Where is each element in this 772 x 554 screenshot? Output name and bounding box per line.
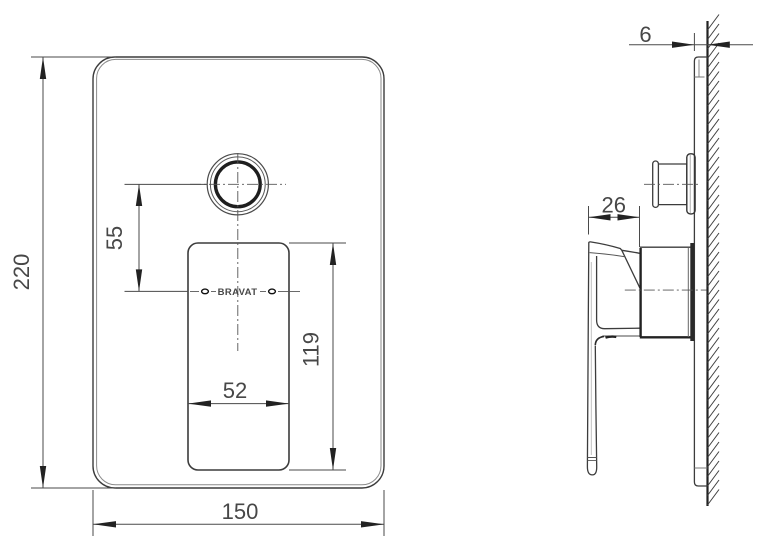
svg-text:52: 52 xyxy=(223,378,247,403)
svg-text:6: 6 xyxy=(639,22,651,47)
svg-text:150: 150 xyxy=(222,499,259,524)
svg-text:BRAVAT: BRAVAT xyxy=(218,287,258,298)
svg-text:26: 26 xyxy=(601,193,625,218)
svg-text:119: 119 xyxy=(299,332,324,367)
svg-text:55: 55 xyxy=(102,226,127,250)
svg-text:220: 220 xyxy=(9,254,34,291)
